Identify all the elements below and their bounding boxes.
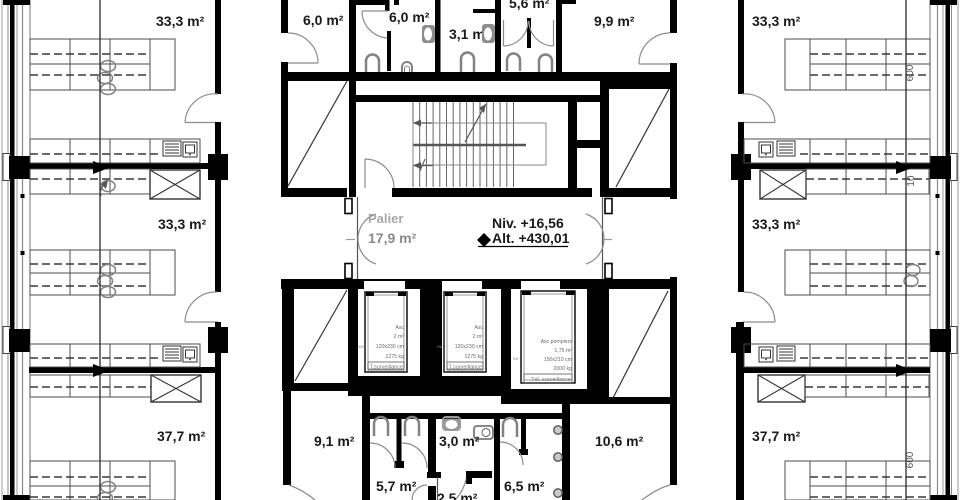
svg-text:Asc: Asc: [395, 325, 404, 331]
svg-text:Asc: Asc: [474, 325, 483, 331]
svg-text:1,75 m²: 1,75 m²: [554, 348, 572, 354]
svg-text:37,7 m²: 37,7 m²: [752, 428, 801, 444]
svg-text:10,6 m²: 10,6 m²: [595, 433, 644, 449]
svg-text:17,9 m²: 17,9 m²: [368, 230, 417, 246]
svg-text:Niv. +16,56: Niv. +16,56: [492, 215, 564, 231]
svg-text:2 m²: 2 m²: [394, 334, 405, 340]
svg-text:9,1 m²: 9,1 m²: [314, 433, 355, 449]
svg-text:6,5 m²: 6,5 m²: [504, 478, 545, 494]
svg-text:1275 kg: 1275 kg: [465, 354, 484, 360]
svg-text:Tél. surveillance: Tél. surveillance: [531, 377, 571, 383]
svg-text:2 m²: 2 m²: [473, 334, 484, 340]
svg-text:600: 600: [905, 451, 916, 468]
svg-text:1275 kg: 1275 kg: [386, 354, 405, 360]
svg-text:Palier: Palier: [368, 211, 403, 226]
svg-text:2000 kg: 2000 kg: [554, 366, 573, 372]
svg-text:120x230 cm: 120x230 cm: [376, 344, 404, 350]
svg-text:Asc.pompiers: Asc.pompiers: [541, 339, 573, 345]
svg-text:33,3 m²: 33,3 m²: [156, 13, 205, 29]
svg-text:120x230 cm: 120x230 cm: [455, 344, 483, 350]
svg-text:33,3 m²: 33,3 m²: [752, 216, 801, 232]
svg-text:3,0 m²: 3,0 m²: [439, 433, 480, 449]
svg-text:10: 10: [906, 175, 917, 187]
svg-text:5,6 m²: 5,6 m²: [509, 0, 550, 11]
svg-text:Alt. +430,01: Alt. +430,01: [492, 230, 570, 246]
svg-text:2,5 m²: 2,5 m²: [437, 490, 478, 500]
svg-text:vw: vw: [513, 356, 519, 361]
svg-text:T.surveillance: T.surveillance: [449, 365, 482, 371]
svg-text:6,0 m²: 6,0 m²: [303, 12, 344, 28]
svg-text:6,0 m²: 6,0 m²: [389, 9, 430, 25]
svg-text:T.surveillance: T.surveillance: [370, 365, 403, 371]
svg-text:9,9 m²: 9,9 m²: [594, 13, 635, 29]
svg-text:vw: vw: [358, 344, 364, 349]
svg-text:vw: vw: [437, 344, 443, 349]
svg-text:33,3 m²: 33,3 m²: [752, 13, 801, 29]
svg-text:5,7 m²: 5,7 m²: [376, 478, 417, 494]
svg-text:33,3 m²: 33,3 m²: [158, 216, 207, 232]
svg-text:37,7 m²: 37,7 m²: [157, 428, 206, 444]
svg-text:600: 600: [905, 64, 916, 81]
svg-text:150x210 cm: 150x210 cm: [544, 357, 572, 363]
